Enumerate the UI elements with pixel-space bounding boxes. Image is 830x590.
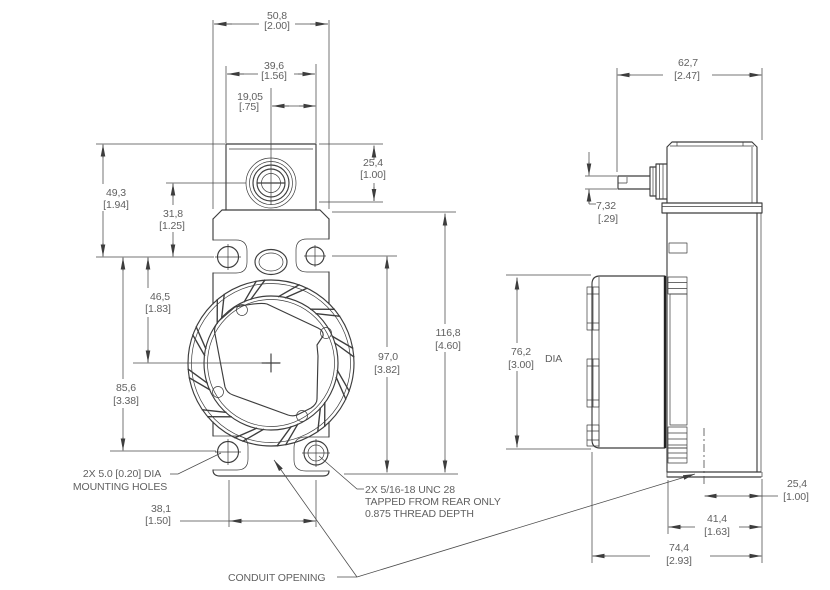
note-text: CONDUIT OPENING <box>228 572 325 584</box>
bezel-rib <box>285 288 308 298</box>
dim-stem-height: 7,32 [.29] <box>589 152 618 225</box>
dim-text: 7,32 <box>596 200 616 212</box>
mounting-hole-lower-left <box>215 439 241 465</box>
side-view <box>587 142 762 484</box>
mounting-hole-upper-right <box>304 245 326 267</box>
tapped-hole-lower-right <box>302 439 330 467</box>
note-conduit-opening: CONDUIT OPENING <box>228 460 695 584</box>
dim-text: 74,4 <box>669 542 689 554</box>
dim-dial-diameter: 76,2 [3.00] DIA <box>508 278 562 448</box>
bezel-side-profile <box>587 276 665 448</box>
note-text: 0.875 THREAD DEPTH <box>365 508 474 520</box>
bezel-rib <box>278 285 300 297</box>
bezel-rib <box>336 377 346 400</box>
dim-port-to-edge: 19,05 [.75] <box>237 91 315 113</box>
bezel-rib <box>234 428 257 438</box>
bezel-clip <box>587 287 599 330</box>
extension-lines <box>96 20 762 563</box>
dim-text: [2.47] <box>674 70 700 82</box>
bezel-rib <box>196 326 206 349</box>
note-text: 2X 5/16-18 UNC 28 <box>365 484 455 496</box>
oval-opening <box>255 250 287 275</box>
dim-text: 49,3 <box>106 187 126 199</box>
bezel-rib <box>337 370 349 392</box>
dim-upper-to-lower-holes: 85,6 [3.38] <box>113 258 139 451</box>
dim-overall-depth: 74,4 [2.93] <box>593 542 762 567</box>
dimension-drawing-canvas: 50,8 [2.00] 39,6 [1.56] 19,05 [.75] 25,4… <box>0 0 830 590</box>
dial-window <box>215 303 324 415</box>
dim-text: [3.00] <box>508 359 534 371</box>
dim-body-height: 116,8 [4.60] <box>435 214 461 473</box>
threaded-stem <box>618 164 667 199</box>
dim-text: 76,2 <box>511 346 531 358</box>
dim-text: 97,0 <box>378 351 398 363</box>
plate-edge-bosses <box>668 243 687 463</box>
dim-text: [1.56] <box>261 70 287 82</box>
dim-text: [.29] <box>598 213 618 225</box>
dim-text: [2.00] <box>264 20 290 32</box>
note-mounting-holes: 2X 5.0 [0.20] DIA MOUNTING HOLES <box>73 453 221 493</box>
dim-block-width: 39,6 [1.56] <box>227 60 315 82</box>
dim-lower-hole-spacing: 38,1 [1.50] <box>145 503 315 527</box>
dim-conduit-to-rear: 25,4 [1.00] <box>705 478 810 503</box>
bezel-clip <box>587 425 599 446</box>
dim-overall-width: 50,8 [2.00] <box>214 10 328 32</box>
dim-text: [3.82] <box>374 364 400 376</box>
dim-text: [3.38] <box>113 395 139 407</box>
dim-upper-holes-to-center: 46,5 [1.83] <box>145 258 171 363</box>
note-tapped-holes: 2X 5/16-18 UNC 28 TAPPED FROM REAR ONLY … <box>319 456 501 520</box>
housing-flange <box>662 203 762 213</box>
dim-block-height: 25,4 [1.00] <box>360 146 386 202</box>
dial-screw <box>321 328 332 339</box>
dim-base-depth: 41,4 [1.63] <box>669 513 762 538</box>
dim-text: 85,6 <box>116 382 136 394</box>
dim-text: 116,8 <box>436 327 461 339</box>
note-text: MOUNTING HOLES <box>73 481 167 493</box>
dim-text: [4.60] <box>435 340 461 352</box>
dim-text: [1.00] <box>783 491 809 503</box>
switch-housing <box>667 142 757 203</box>
bezel-rib <box>242 429 264 441</box>
dim-text: [1.83] <box>145 303 171 315</box>
note-text: 2X 5.0 [0.20] DIA <box>83 468 161 480</box>
dim-text: [1.50] <box>145 515 171 527</box>
technical-drawing: 50,8 [2.00] 39,6 [1.56] 19,05 [.75] 25,4… <box>0 0 830 590</box>
dim-block-top-to-upper-holes: 49,3 [1.94] <box>103 145 129 257</box>
dim-text: 46,5 <box>150 291 170 303</box>
dim-text: 25,4 <box>787 478 807 490</box>
bezel-rib <box>193 334 205 356</box>
note-text: TAPPED FROM REAR ONLY <box>365 496 501 508</box>
dim-text: [1.94] <box>103 199 129 211</box>
upper-left-ear <box>213 240 247 273</box>
mounting-hole-upper-left <box>215 244 241 270</box>
dim-text: 25,4 <box>363 157 383 169</box>
body-profile <box>667 213 762 477</box>
dim-text: [2.93] <box>666 555 692 567</box>
dim-text: [1.00] <box>360 169 386 181</box>
dim-port-to-upper-holes: 31,8 [1.25] <box>159 184 185 257</box>
dim-text: 38,1 <box>151 503 171 515</box>
bezel-clip <box>587 359 599 407</box>
dim-text: [.75] <box>239 101 259 113</box>
dim-text-dia-suffix: DIA <box>545 353 562 365</box>
dim-upper-holes-to-bottom: 97,0 [3.82] <box>374 257 400 473</box>
dim-text: 41,4 <box>707 513 727 525</box>
dim-text: 62,7 <box>678 57 698 69</box>
dim-text: [1.63] <box>704 526 730 538</box>
dim-text: [1.25] <box>159 220 185 232</box>
dim-text: 31,8 <box>163 208 183 220</box>
dim-housing-depth: 62,7 [2.47] <box>618 57 762 82</box>
